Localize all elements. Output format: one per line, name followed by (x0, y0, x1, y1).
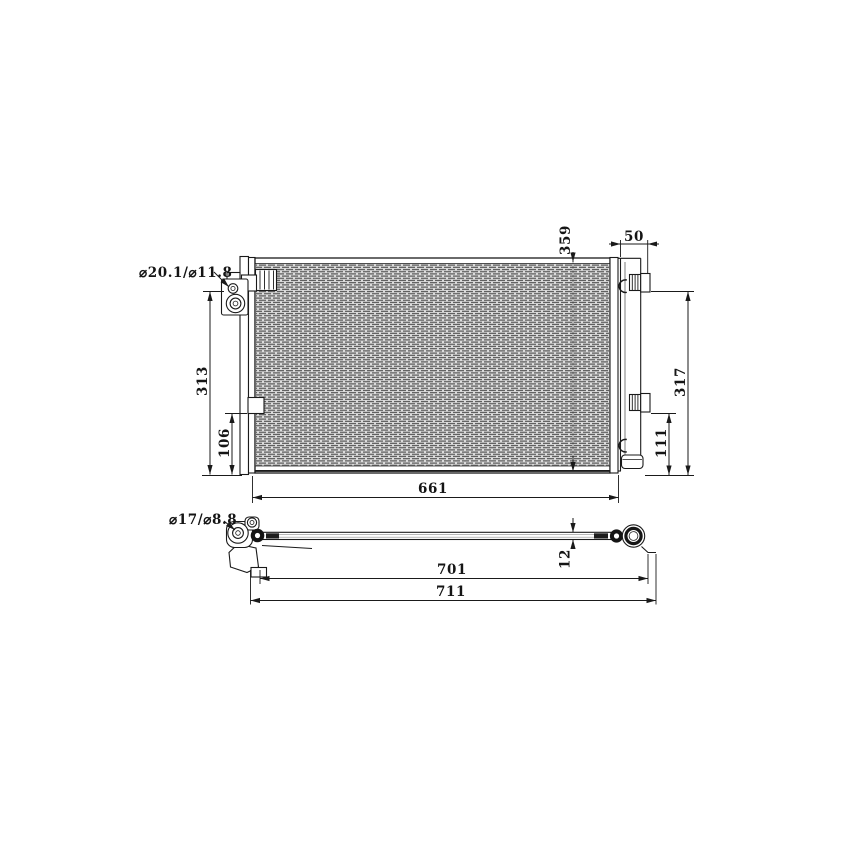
ring-fitting-right (622, 525, 644, 547)
dim-drier-offset-label: 50 (624, 229, 644, 245)
dim-length-mounting-label: 701 (437, 562, 467, 578)
dim-thickness-label: 12 (558, 549, 574, 569)
front-port-label: ⌀20.1/⌀11.8 (139, 265, 233, 281)
dim-core-height-label: 359 (558, 225, 574, 255)
small-port-circle (228, 284, 238, 294)
dim-left-lower-label: 106 (217, 428, 233, 458)
mounting-bracket-top (630, 274, 651, 293)
dim-right-lower-label: 111 (654, 428, 670, 458)
left-mount-tab (248, 398, 264, 414)
side-port-label: ⌀17/⌀8.8 (169, 512, 237, 528)
dim-core-width-label: 661 (418, 481, 448, 497)
tube-weld-left (266, 533, 279, 538)
drier-bottom-cap (622, 455, 644, 469)
dim-left-height-label: 313 (195, 366, 211, 396)
condenser-technical-drawing: ⌀20.1/⌀11.8 359 50 313 106 661 317 (0, 0, 850, 850)
dim-length-overall-label: 711 (436, 584, 466, 600)
large-port-circle (226, 294, 244, 312)
right-side-plate (610, 258, 618, 474)
core-fins (256, 264, 609, 466)
tube (263, 532, 611, 539)
tube-weld-right (594, 533, 608, 538)
front-view (222, 257, 651, 475)
dim-right-height-label: 317 (673, 367, 689, 397)
small-port-circle-side (247, 518, 256, 527)
bracket-foot-tab (251, 568, 267, 578)
mounting-bracket-bottom (630, 394, 651, 413)
